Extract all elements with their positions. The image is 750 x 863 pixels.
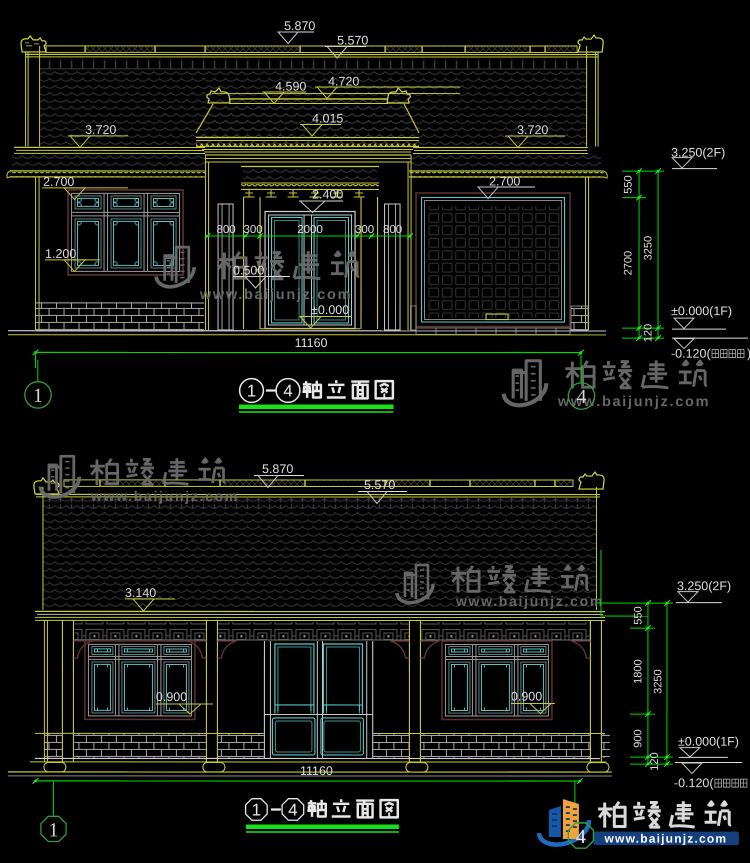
svg-text:2.400: 2.400 <box>312 187 343 201</box>
svg-text:3.250(2F): 3.250(2F) <box>677 579 731 593</box>
svg-text:1: 1 <box>252 800 261 819</box>
svg-text:www.baijunjz.com: www.baijunjz.com <box>604 832 728 846</box>
svg-text:11160: 11160 <box>295 336 328 350</box>
svg-text:www.baijunjz.com: www.baijunjz.com <box>199 287 352 303</box>
svg-text:4.015: 4.015 <box>312 111 343 125</box>
svg-text:www.baijunjz.com: www.baijunjz.com <box>90 488 239 504</box>
svg-text:1: 1 <box>33 385 43 407</box>
svg-text:1: 1 <box>247 381 256 400</box>
svg-text:550: 550 <box>632 606 644 624</box>
svg-text:4: 4 <box>283 381 292 400</box>
svg-text:5.570: 5.570 <box>337 33 368 47</box>
svg-text:4: 4 <box>576 826 586 848</box>
svg-text:120: 120 <box>643 324 655 342</box>
svg-text:5.570: 5.570 <box>364 478 395 492</box>
svg-text:5.870: 5.870 <box>262 462 293 476</box>
svg-text:3.140: 3.140 <box>125 586 156 600</box>
svg-text:0.500: 0.500 <box>233 263 264 277</box>
svg-text:1.200: 1.200 <box>45 247 76 261</box>
svg-text:300: 300 <box>355 224 374 236</box>
svg-text:www.baijunjz.com: www.baijunjz.com <box>455 593 604 609</box>
svg-text:2.700: 2.700 <box>489 175 520 189</box>
svg-text:4: 4 <box>288 800 297 819</box>
svg-text:2.700: 2.700 <box>43 175 74 189</box>
svg-text:800: 800 <box>383 224 402 236</box>
svg-text:±0.000(1F): ±0.000(1F) <box>678 735 739 749</box>
svg-text:1: 1 <box>48 819 58 841</box>
svg-text:-0.120(: -0.120( <box>674 776 714 790</box>
svg-text:11160: 11160 <box>300 764 333 778</box>
svg-text:±0.000: ±0.000 <box>311 303 349 317</box>
svg-text:4.590: 4.590 <box>275 79 306 93</box>
svg-text:550: 550 <box>623 175 635 193</box>
svg-text:4: 4 <box>577 386 587 408</box>
svg-text:900: 900 <box>632 729 644 747</box>
svg-text:3250: 3250 <box>652 669 664 693</box>
svg-text:120: 120 <box>649 752 661 770</box>
svg-text:1800: 1800 <box>632 659 644 683</box>
svg-text:5.870: 5.870 <box>284 19 315 33</box>
svg-text:3250: 3250 <box>643 236 655 260</box>
svg-text:3.720: 3.720 <box>85 123 116 137</box>
svg-text:2700: 2700 <box>623 251 635 275</box>
svg-text:4.720: 4.720 <box>328 74 359 88</box>
svg-text:-0.120(: -0.120( <box>671 347 711 361</box>
svg-text:0.900: 0.900 <box>511 690 542 704</box>
svg-text:300: 300 <box>243 224 262 236</box>
svg-text:0.900: 0.900 <box>156 690 187 704</box>
svg-text:2000: 2000 <box>297 224 323 236</box>
svg-text:3.720: 3.720 <box>517 123 548 137</box>
svg-text:±0.000(1F): ±0.000(1F) <box>671 304 732 318</box>
svg-text:800: 800 <box>216 224 235 236</box>
